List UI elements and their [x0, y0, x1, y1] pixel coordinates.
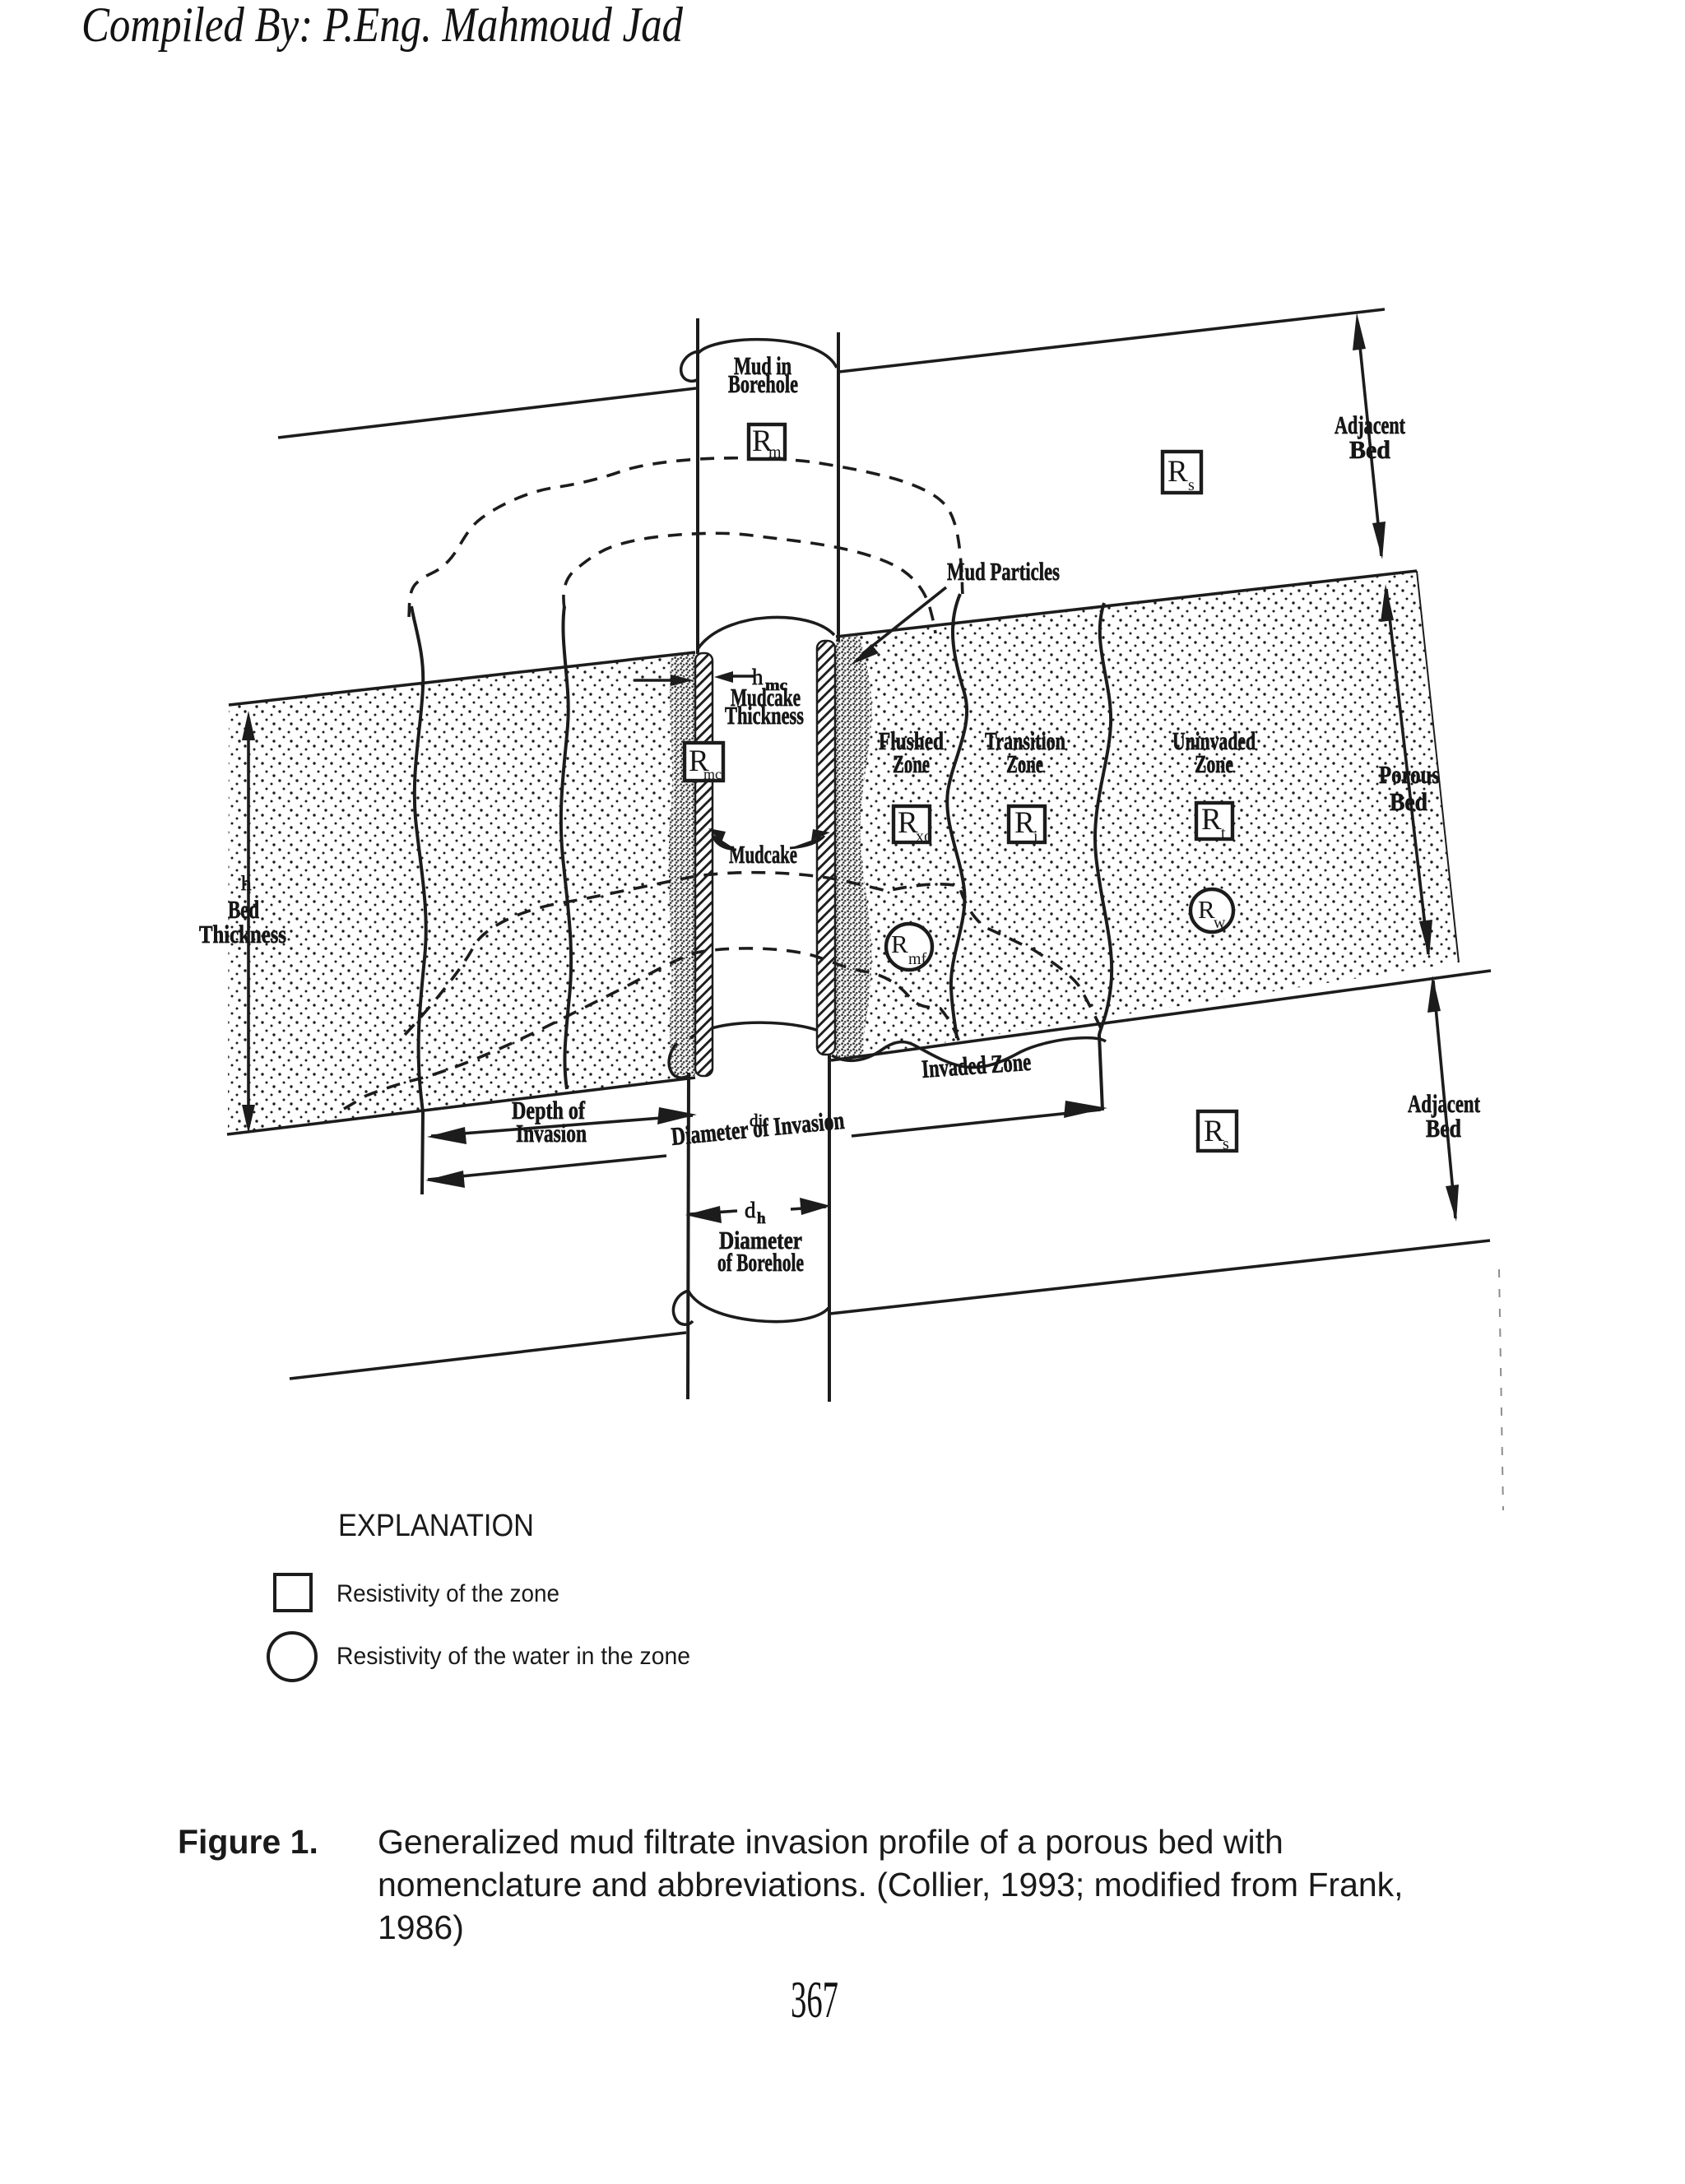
- svg-text:s: s: [1223, 1135, 1229, 1153]
- svg-text:mf: mf: [908, 950, 927, 968]
- svg-text:R: R: [1204, 1115, 1224, 1148]
- svg-text:R: R: [1198, 895, 1215, 924]
- svg-text:of Borehole: of Borehole: [717, 1248, 804, 1277]
- svg-text:Invasion: Invasion: [516, 1119, 587, 1148]
- svg-text:xo: xo: [916, 828, 932, 846]
- svg-text:EXPLANATION: EXPLANATION: [338, 1509, 534, 1543]
- svg-text:Thickness: Thickness: [725, 701, 804, 730]
- svg-text:R: R: [891, 930, 908, 958]
- svg-text:Figure 1.: Figure 1.: [178, 1823, 318, 1861]
- svg-text:R: R: [1014, 806, 1035, 840]
- svg-text:Bed: Bed: [1390, 787, 1427, 816]
- svg-text:mc: mc: [703, 766, 722, 782]
- svg-text:Bed: Bed: [1426, 1114, 1461, 1143]
- svg-text:Zone: Zone: [893, 749, 930, 778]
- svg-text:367: 367: [791, 1971, 838, 2029]
- svg-text:i: i: [1033, 828, 1038, 846]
- svg-text:Thickness: Thickness: [199, 920, 286, 948]
- svg-text:h: h: [241, 873, 252, 895]
- svg-text:m: m: [768, 443, 782, 461]
- svg-text:Invaded Zone: Invaded Zone: [921, 1047, 1032, 1083]
- svg-text:Zone: Zone: [1195, 749, 1233, 778]
- svg-text:Borehole: Borehole: [728, 369, 798, 398]
- svg-text:Zone: Zone: [1006, 749, 1043, 778]
- svg-text:h: h: [757, 1210, 766, 1227]
- svg-text:R: R: [1201, 803, 1222, 837]
- svg-text:t: t: [1221, 824, 1226, 842]
- svg-text:nomenclature and abbreviations: nomenclature and abbreviations. (Collier…: [378, 1866, 1404, 1903]
- svg-text:Generalized mud filtrate invas: Generalized mud filtrate invasion profil…: [378, 1823, 1283, 1861]
- svg-text:Resistivity of the zone: Resistivity of the zone: [337, 1580, 559, 1607]
- svg-text:Compiled By: P.Eng. Mahmoud Ja: Compiled By: P.Eng. Mahmoud Jad: [81, 0, 684, 52]
- svg-text:Porous: Porous: [1379, 760, 1440, 789]
- svg-text:Resistivity of the water in th: Resistivity of the water in the zone: [337, 1643, 690, 1670]
- svg-text:Mud Particles: Mud Particles: [947, 557, 1060, 586]
- svg-text:R: R: [1167, 455, 1188, 489]
- svg-text:Bed: Bed: [1349, 435, 1390, 464]
- svg-text:s: s: [1188, 476, 1195, 494]
- svg-text:w: w: [1214, 914, 1226, 932]
- svg-text:Mudcake: Mudcake: [729, 840, 797, 869]
- svg-text:d: d: [745, 1198, 756, 1222]
- svg-text:1986): 1986): [378, 1908, 464, 1946]
